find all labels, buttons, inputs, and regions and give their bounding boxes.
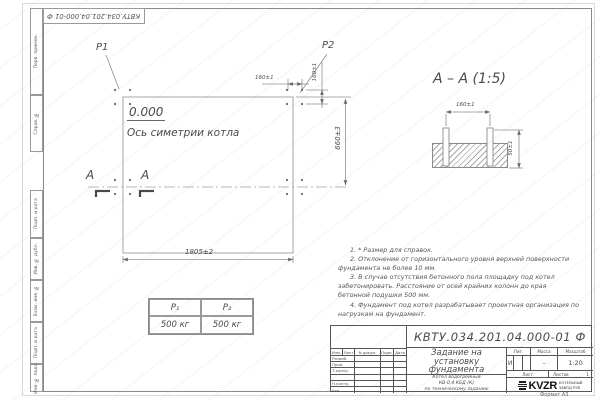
sheets-label: Листов — [553, 372, 569, 377]
section-dim-embed: 50±1 — [508, 136, 514, 160]
stamp-label: Взам. инв. № — [34, 285, 39, 316]
note-2: 2. Отклонение от горизонтального уровня … — [338, 255, 580, 273]
logo-cell: KVZR КОТЕЛЬНЫЙ ЗАВОД РЭП — [506, 378, 593, 393]
sheets-value: 1 — [586, 372, 589, 377]
title-block-doc-number: КВТУ.034.201.04.000-01 Ф — [406, 326, 593, 348]
note-1: 1. * Размер для справок. — [338, 246, 580, 255]
mass-header: Масса — [531, 348, 558, 356]
stamp-vzam-inv: Взам. инв. № — [30, 280, 43, 322]
stamp-podp-data-2: Подп. и дата — [30, 322, 43, 364]
stamp-inv-dubl: Инв. № дубл. — [30, 238, 43, 280]
concrete-hatch — [432, 143, 508, 168]
kvzr-logo-text: KVZR — [529, 380, 557, 392]
sheets-cell: Листов 1 — [549, 371, 593, 378]
stamp-perv-primen: Перв. примен. — [30, 8, 43, 95]
loads-table-value-p1: 500 кг — [149, 316, 201, 334]
stamp-label: Перв. примен. — [34, 34, 39, 69]
section-letter-left: А — [86, 168, 94, 182]
kvzr-logo-icon — [518, 381, 527, 391]
sig-header-list: Лист — [343, 348, 355, 356]
sig-header-izm: Изм. — [331, 348, 343, 356]
dim-foundation-height: 660±3 — [334, 125, 342, 151]
loads-table: P₁ P₂ 500 кг 500 кг — [148, 298, 254, 335]
sig-header-ndokum: N докум. — [355, 348, 381, 356]
loads-table-header-p2: P₂ — [201, 299, 253, 316]
stamp-label: Справ. № — [34, 112, 39, 135]
doc-number-top-box: КВТУ.034.201.04.000-01 Ф — [43, 8, 145, 24]
stamp-podp-data-1: Подп. и дата — [30, 190, 43, 238]
kvzr-logo-caption: КОТЕЛЬНЫЙ ЗАВОД РЭП — [559, 381, 583, 390]
title-block-task-name: Задание на установку фундамента — [406, 348, 506, 375]
sig-header-data: Дата — [394, 348, 406, 356]
dim-bolt-spacing-h: 160±1 — [255, 75, 274, 81]
lit-header: Лит. — [506, 348, 531, 356]
mass-value: – — [531, 356, 558, 371]
section-letter-right: А — [141, 168, 149, 182]
stamp-label: Подп. и дата — [34, 327, 39, 358]
title-block: КВТУ.034.201.04.000-01 Ф Изм. Лист N док… — [330, 325, 592, 392]
stamp-label: Инв. № дубл. — [34, 243, 39, 275]
technical-notes: 1. * Размер для справок. 2. Отклонение о… — [338, 246, 580, 319]
dim-foundation-width: 1805±2 — [185, 248, 213, 256]
section-dim-spacing: 160±1 — [456, 102, 475, 108]
boiler-symmetry-axis-label: Ось симетрии котла — [127, 127, 239, 139]
stamp-sprav-no: Справ. № — [30, 95, 43, 152]
sheet-label: Лист — [506, 371, 549, 378]
section-view-title: А – А (1:5) — [433, 71, 506, 87]
format-label: Формат А3 — [540, 392, 568, 398]
doc-number-top: КВТУ.034.201.04.000-01 Ф — [47, 12, 140, 20]
loads-table-header-p1: P₁ — [149, 299, 201, 316]
sig-header-podp: Подп. — [381, 348, 394, 356]
stamp-label: Подп. и дата — [34, 198, 39, 229]
stamp-inv-podl: Инв. № подл. — [30, 364, 43, 392]
stamp-label: Инв. № подл. — [34, 362, 39, 394]
note-3: 3. В случае отсутствия бетонного пола пл… — [338, 273, 580, 300]
scale-header: Масштаб — [558, 348, 593, 356]
drawing-sheet: Перв. примен. Справ. № Подп. и дата Инв.… — [0, 0, 600, 400]
loads-table-value-p2: 500 кг — [201, 316, 253, 334]
elevation-mark: 0.000 — [127, 105, 165, 121]
title-block-product: Котел водогрейный КВ-0,4 КБД (К) по техн… — [406, 375, 506, 393]
load-point-p2-label: P2 — [322, 40, 334, 51]
lit-value: И — [506, 356, 514, 371]
scale-value: 1:20 — [558, 356, 593, 371]
note-4: 4. Фундамент под котел разрабатывает про… — [338, 301, 580, 319]
load-point-p1-label: P1 — [96, 42, 108, 53]
sig-row-utv: Утв. — [331, 387, 355, 393]
dim-bolt-spacing-v: 160±1 — [312, 60, 318, 84]
